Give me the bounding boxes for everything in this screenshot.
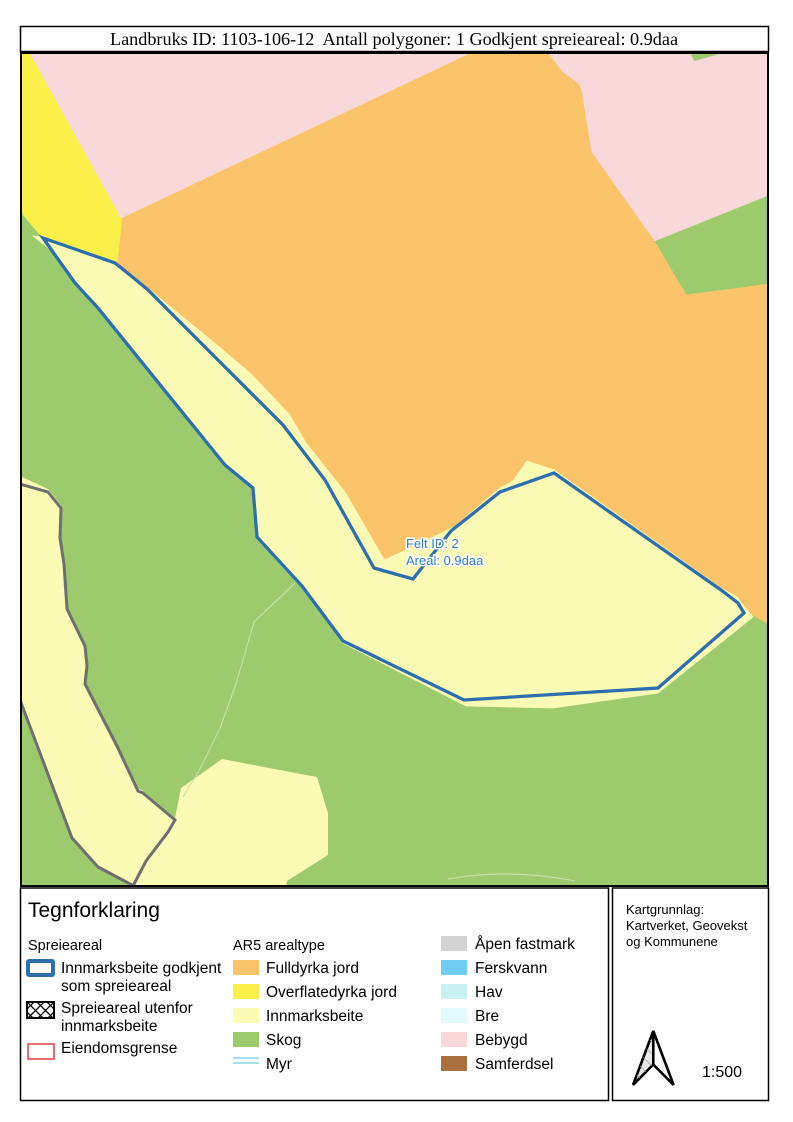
svg-text:Overflatedyrka jord: Overflatedyrka jord [266,984,397,1001]
svg-text:Fulldyrka jord: Fulldyrka jord [266,960,359,977]
svg-text:Innmarksbeite godkjent: Innmarksbeite godkjent [61,960,222,977]
svg-text:1:500: 1:500 [702,1064,742,1081]
svg-text:innmarksbeite: innmarksbeite [61,1018,158,1035]
svg-text:Kartgrunnlag:: Kartgrunnlag: [626,902,704,917]
svg-text:Kartverket, Geovekst: Kartverket, Geovekst [626,918,748,933]
svg-text:Myr: Myr [266,1056,292,1073]
svg-text:Eiendomsgrense: Eiendomsgrense [61,1040,177,1057]
svg-text:AR5 arealtype: AR5 arealtype [233,938,325,954]
svg-text:Felt ID: 2: Felt ID: 2 [406,536,459,551]
svg-text:som spreieareal: som spreieareal [61,978,171,995]
svg-text:og Kommunene: og Kommunene [626,934,718,949]
svg-text:Samferdsel: Samferdsel [475,1056,553,1073]
svg-text:Ferskvann: Ferskvann [475,960,547,977]
svg-text:Bebygd: Bebygd [475,1032,528,1049]
svg-text:Landbruks ID: 1103-106-12 Ant: Landbruks ID: 1103-106-12 Antall polygon… [110,29,678,49]
svg-text:Åpen fastmark: Åpen fastmark [475,936,575,953]
svg-text:Hav: Hav [475,984,503,1001]
svg-text:Areal: 0.9daa: Areal: 0.9daa [406,553,484,568]
svg-text:Bre: Bre [475,1008,499,1025]
svg-text:Innmarksbeite: Innmarksbeite [266,1008,363,1025]
svg-text:Tegnforklaring: Tegnforklaring [28,899,160,922]
svg-text:Skog: Skog [266,1032,301,1049]
svg-text:Spreieareal: Spreieareal [28,938,102,954]
svg-text:Spreieareal utenfor: Spreieareal utenfor [61,1000,193,1017]
